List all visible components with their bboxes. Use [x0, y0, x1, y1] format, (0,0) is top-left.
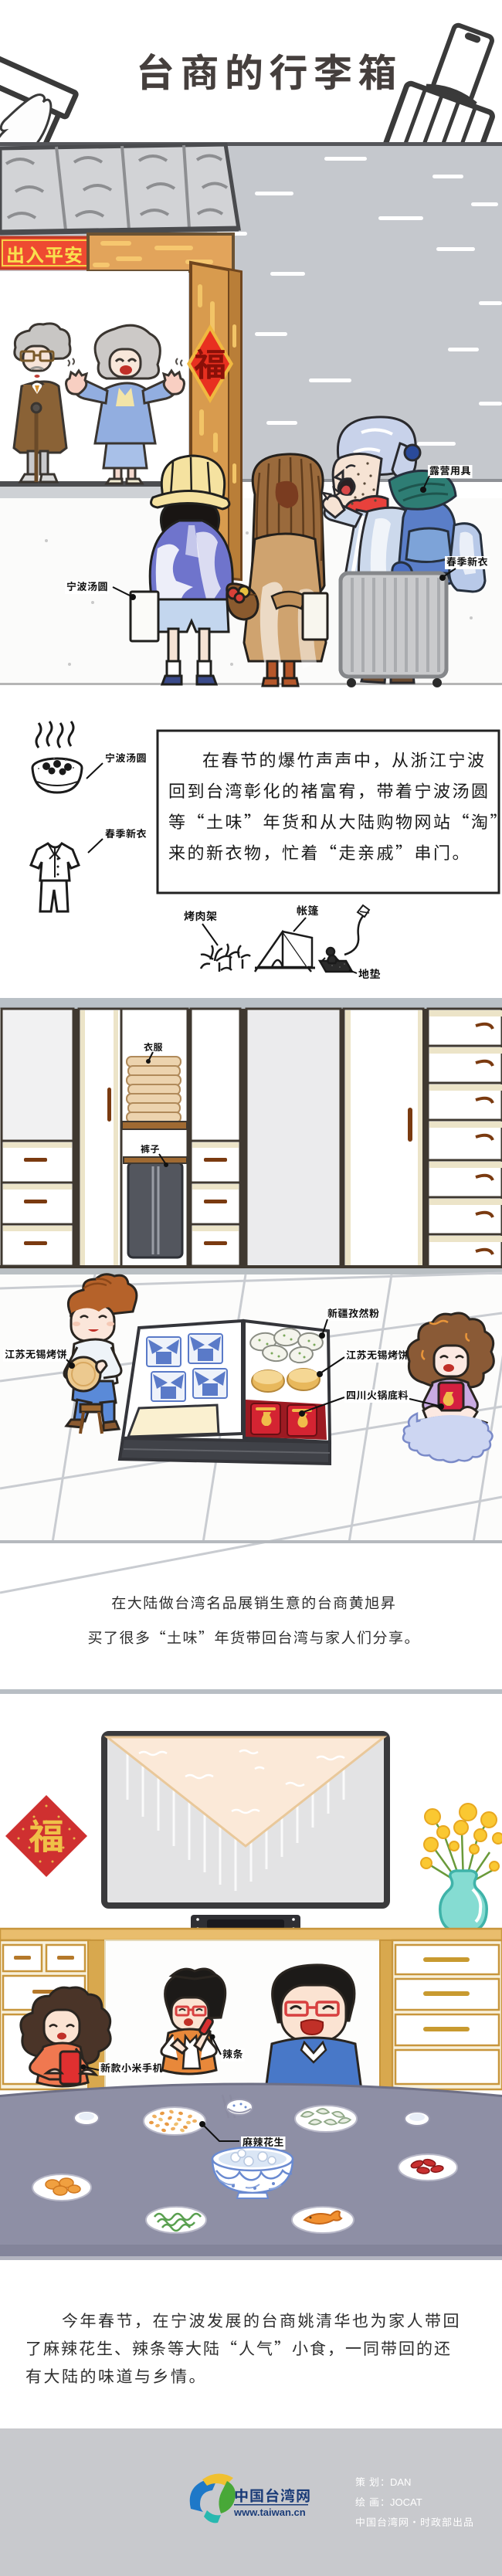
svg-text:DAN: DAN: [390, 2476, 411, 2488]
svg-text:www.taiwan.cn: www.taiwan.cn: [233, 2506, 306, 2518]
svg-text:JOCAT: JOCAT: [390, 2496, 422, 2508]
